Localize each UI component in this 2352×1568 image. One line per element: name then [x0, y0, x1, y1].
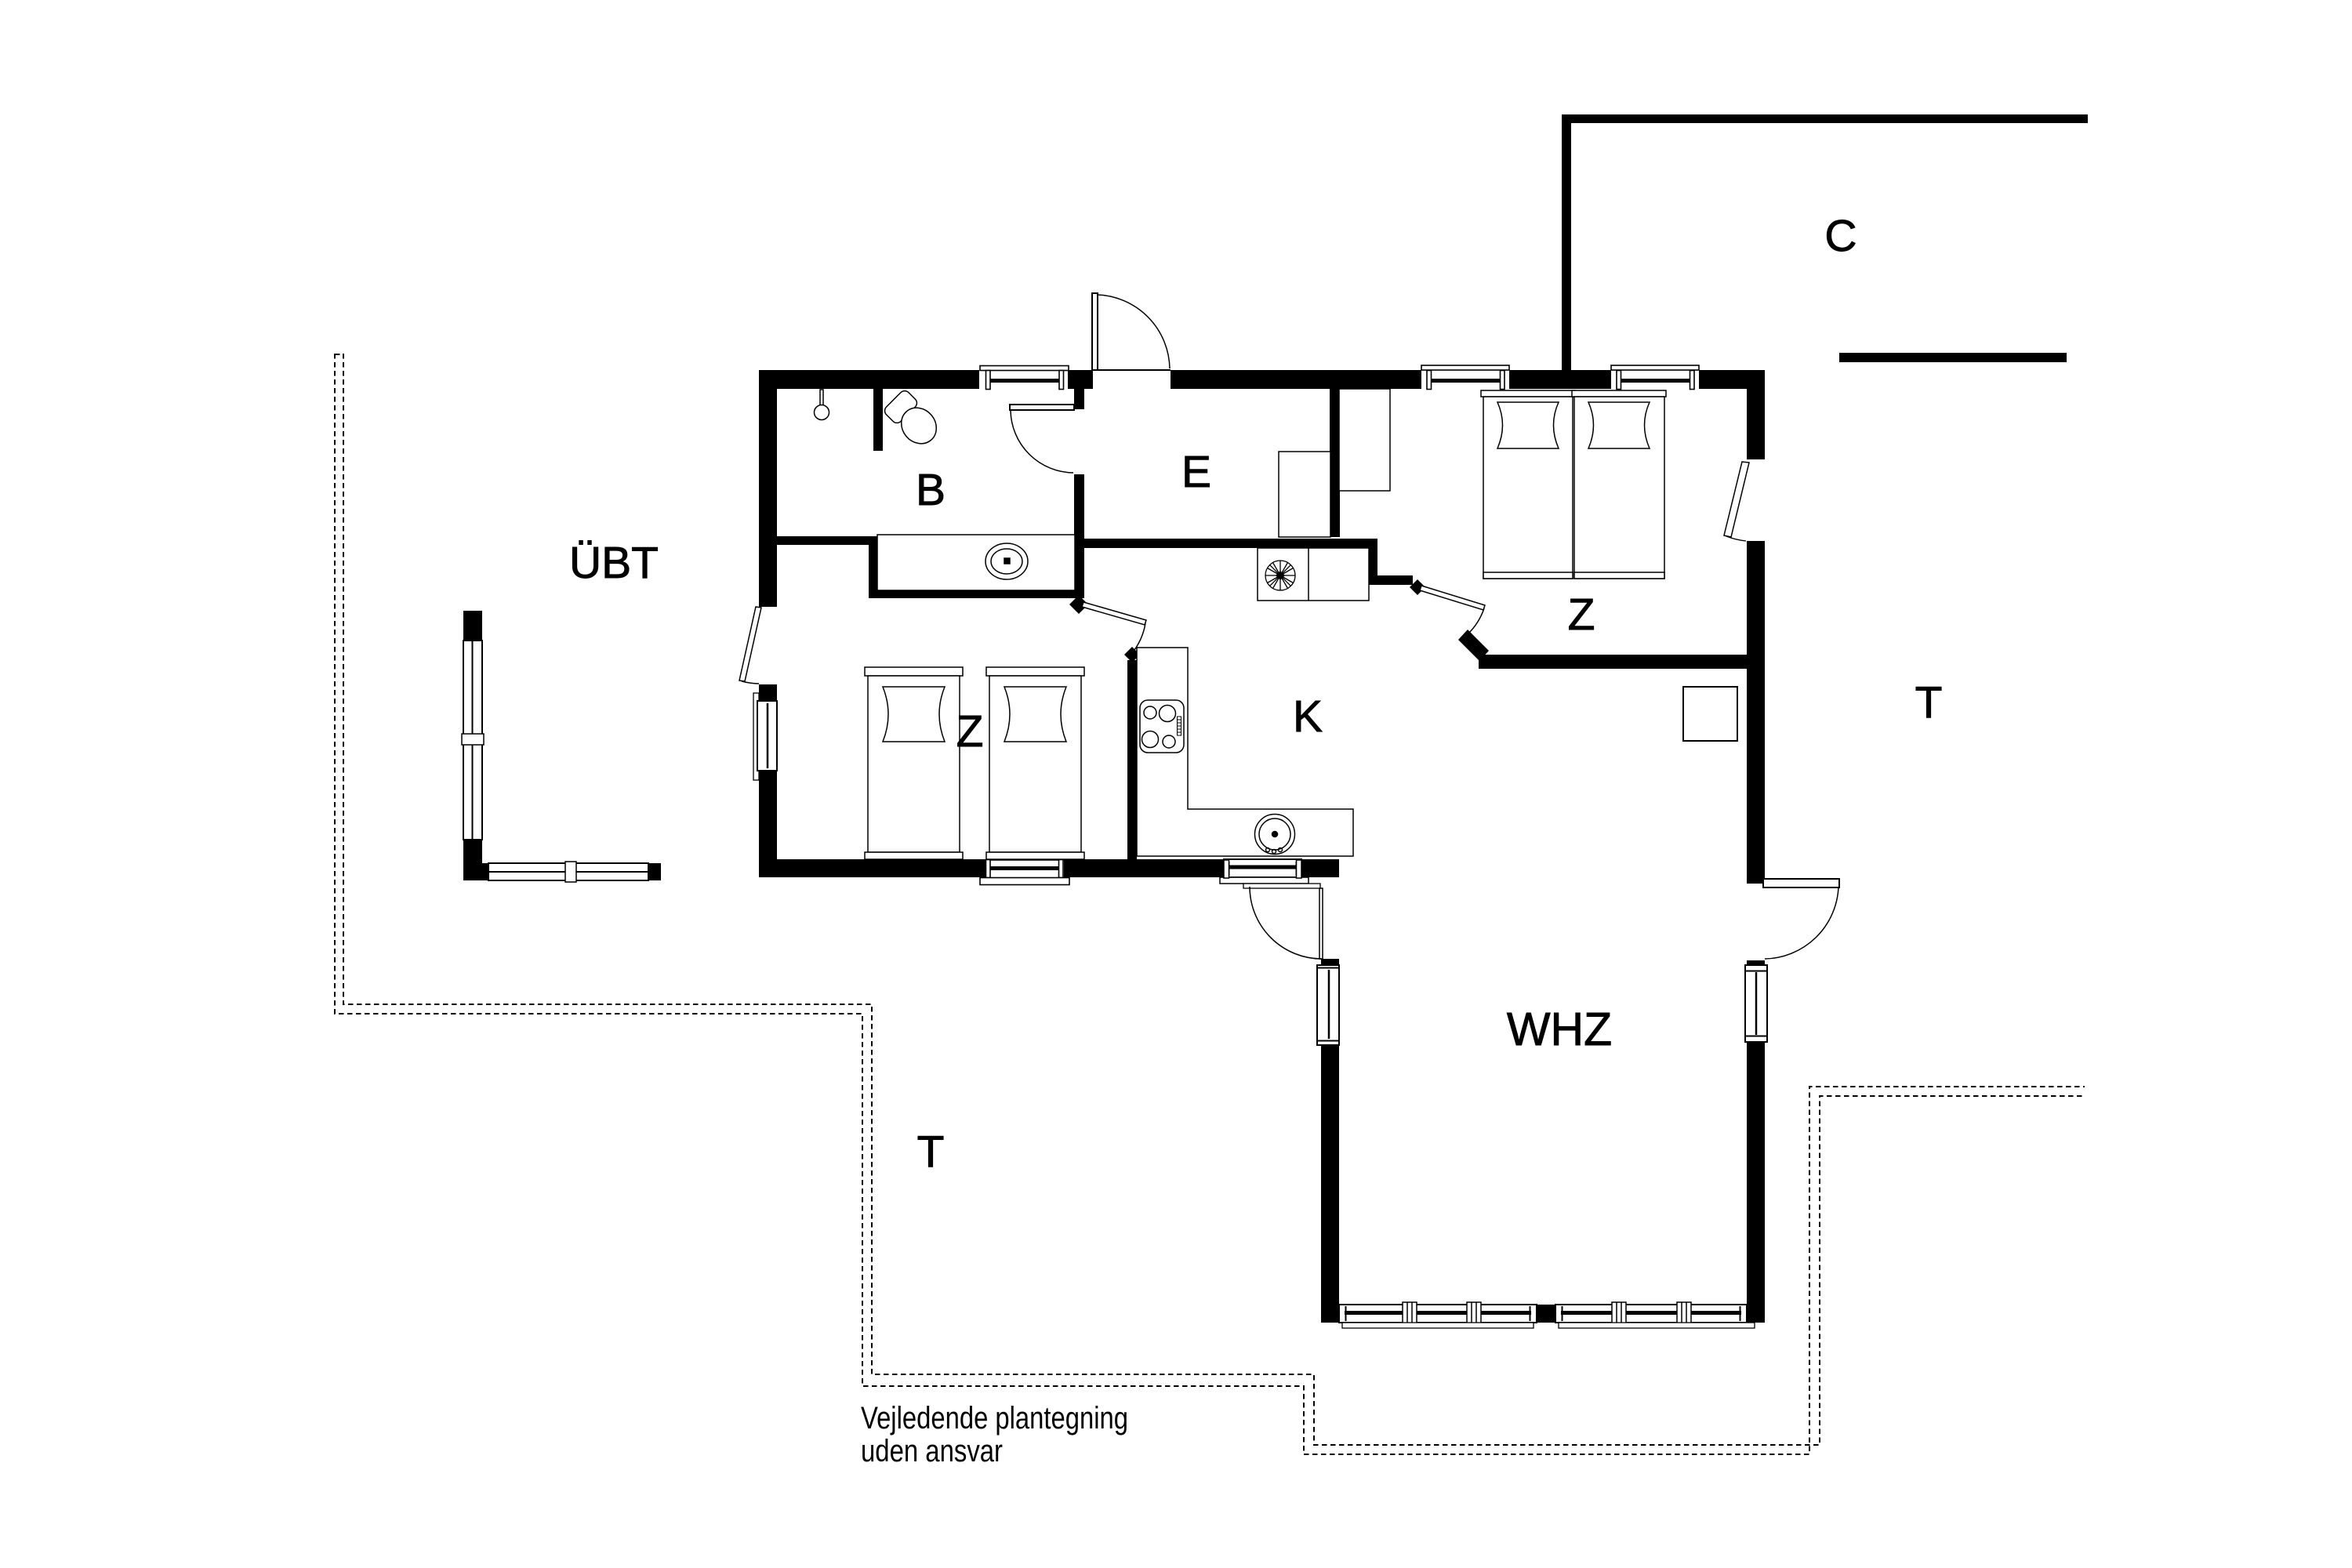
svg-text:B: B — [916, 465, 946, 515]
svg-text:ÜBT: ÜBT — [569, 538, 659, 588]
svg-text:T: T — [917, 1127, 945, 1177]
svg-text:Vejledende plantegning: Vejledende plantegning — [861, 1401, 1128, 1436]
svg-text:Z: Z — [956, 706, 984, 757]
svg-text:WHZ: WHZ — [1507, 1004, 1612, 1055]
svg-text:E: E — [1181, 447, 1211, 497]
svg-text:Z: Z — [1568, 590, 1595, 640]
svg-text:T: T — [1915, 677, 1943, 728]
svg-text:K: K — [1293, 691, 1323, 742]
svg-text:uden ansvar: uden ansvar — [861, 1434, 1003, 1468]
svg-text:C: C — [1824, 211, 1857, 261]
